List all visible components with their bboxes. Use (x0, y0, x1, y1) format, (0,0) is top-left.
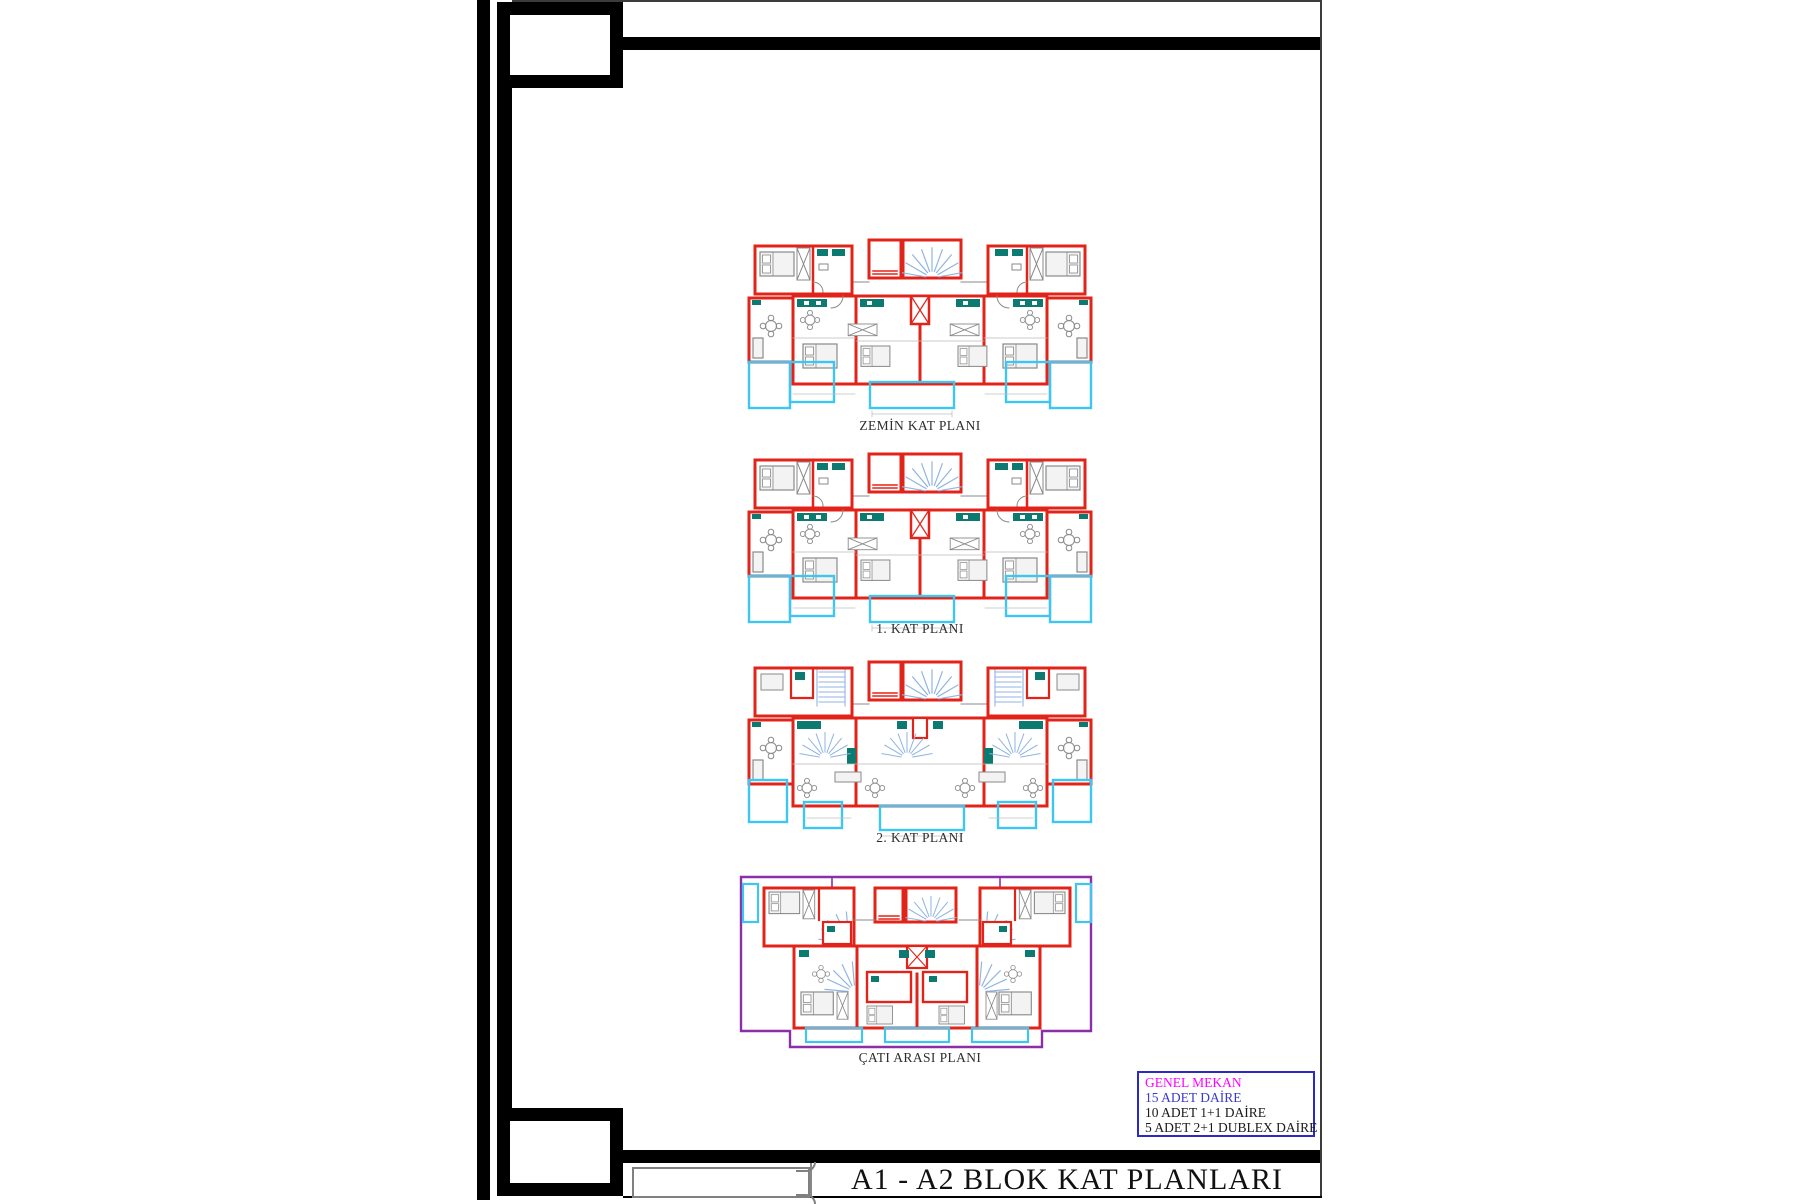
plan-label-1-kat: 1. KAT PLANI (760, 621, 1080, 637)
floor-plan-zemin-kat (747, 238, 1093, 418)
floor-plan-cati-arasi (739, 874, 1095, 1052)
legend-box: GENEL MEKAN 15 ADET DAİRE 10 ADET 1+1 DA… (1137, 1071, 1315, 1137)
legend-title: GENEL MEKAN (1145, 1075, 1307, 1090)
frame-top-bar (623, 37, 1322, 50)
plan-label-zemin-kat: ZEMİN KAT PLANI (760, 418, 1080, 434)
floor-plan-1-kat (747, 452, 1093, 632)
legend-item-total: 15 ADET DAİRE (1145, 1090, 1307, 1105)
plan-label-cati-arasi: ÇATI ARASI PLANI (760, 1050, 1080, 1066)
frame-left-outer-bar (477, 0, 490, 1200)
plan-label-2-kat: 2. KAT PLANI (760, 830, 1080, 846)
frame-bottom-bar (623, 1150, 1322, 1163)
floor-plan-2-kat (747, 660, 1093, 830)
frame-right-line (1320, 0, 1322, 1198)
legend-item-duplex: 5 ADET 2+1 DUBLEX DAİRE (1145, 1120, 1307, 1135)
legend-item-1plus1: 10 ADET 1+1 DAİRE (1145, 1105, 1307, 1120)
frame-top-line (512, 0, 1322, 2)
frame-bottom-notch (497, 1108, 623, 1196)
drawing-sheet: { "sheet": { "title": "A1 - A2 BLOK KAT … (0, 0, 1800, 1200)
sheet-title: A1 - A2 BLOK KAT PLANLARI (812, 1163, 1322, 1197)
titleblock-stamp-box (632, 1167, 810, 1198)
frame-left-inner-bar (497, 2, 512, 1196)
frame-top-notch (497, 2, 623, 88)
